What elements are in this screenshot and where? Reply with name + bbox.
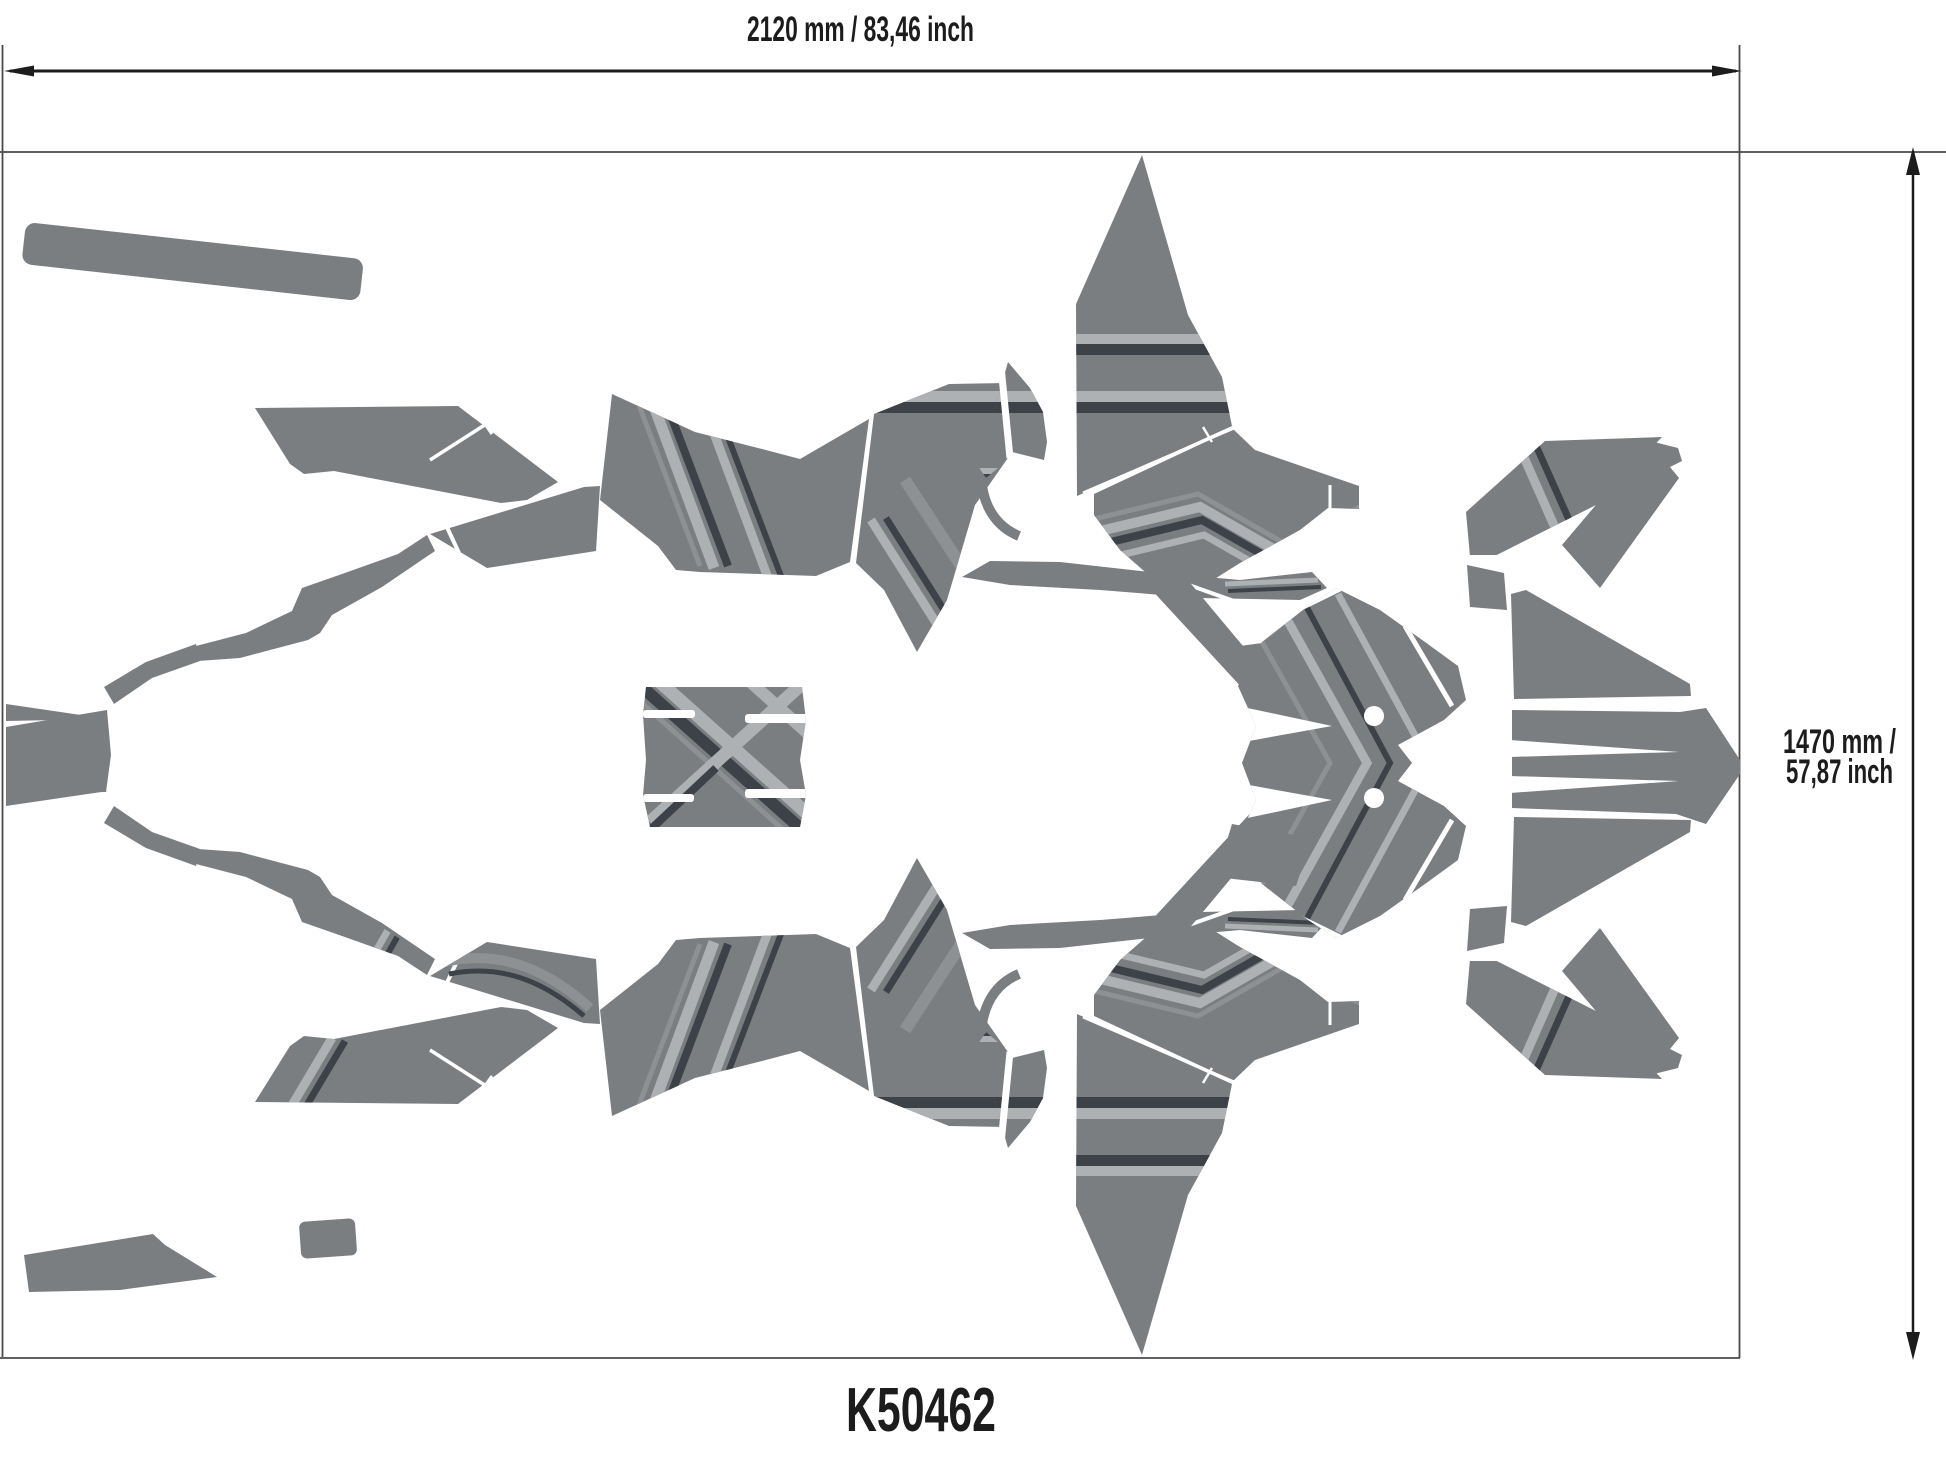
svg-text:2120 mm / 83,46 inch: 2120 mm / 83,46 inch xyxy=(747,10,974,49)
svg-text:57,87 inch: 57,87 inch xyxy=(1786,753,1893,791)
svg-text:K50462: K50462 xyxy=(846,1376,996,1445)
